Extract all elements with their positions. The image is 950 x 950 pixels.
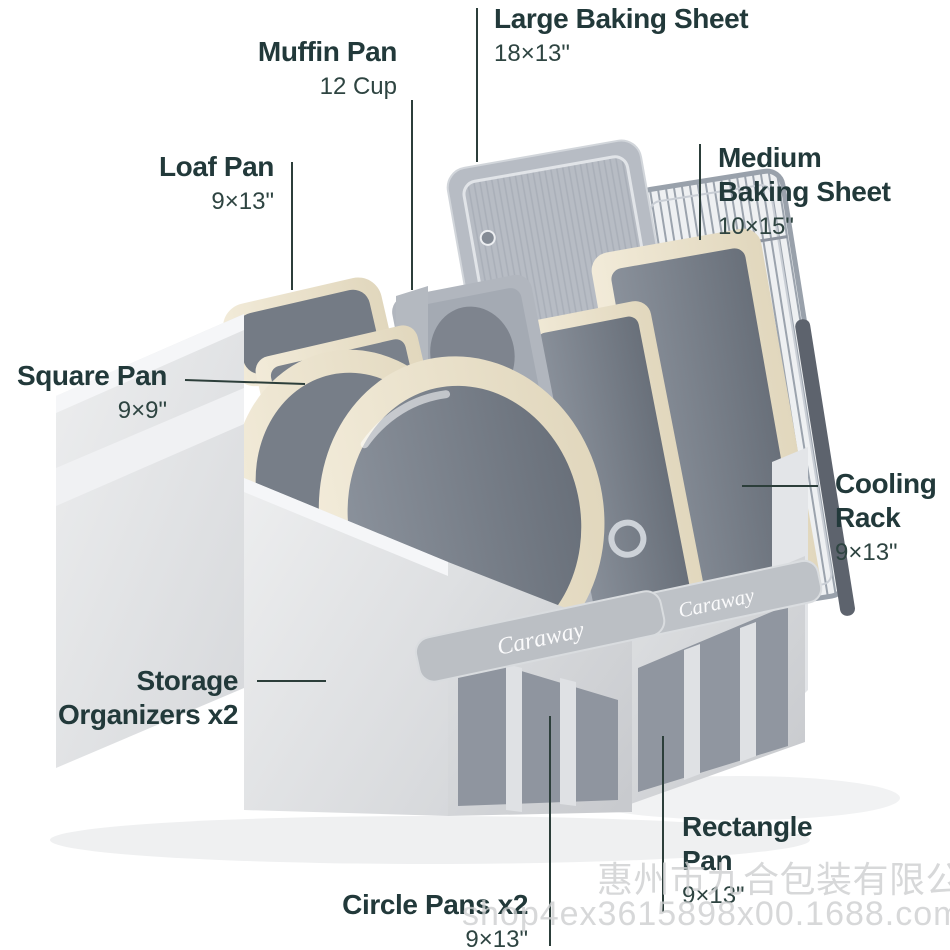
label-loaf-pan-dims: 9×13" <box>159 189 274 215</box>
label-cooling-rack-line2: Rack <box>835 501 936 535</box>
label-loaf-pan: Loaf Pan 9×13" <box>159 150 274 216</box>
label-muffin-pan: Muffin Pan 12 Cup <box>258 35 397 101</box>
label-square-pan: Square Pan 9×9" <box>17 359 167 425</box>
label-cooling-rack-line1: Cooling <box>835 467 936 501</box>
label-cooling-rack-dims: 9×13" <box>835 540 936 566</box>
watermark-shop-url: shop4ex3615898x00.1688.com <box>462 895 950 934</box>
label-storage-organizers-line2: Organizers x2 <box>58 698 238 732</box>
label-medium-baking-sheet-line2: Baking Sheet <box>718 175 891 209</box>
label-cooling-rack: Cooling Rack 9×13" <box>835 467 936 567</box>
label-muffin-pan-title: Muffin Pan <box>258 35 397 69</box>
label-large-baking-sheet: Large Baking Sheet 18×13" <box>494 2 748 68</box>
right-organizer-slat <box>740 622 756 762</box>
label-square-pan-title: Square Pan <box>17 359 167 393</box>
left-organizer-slat <box>506 664 522 812</box>
label-large-baking-sheet-dims: 18×13" <box>494 41 748 67</box>
label-rectangle-pan-line1: Rectangle <box>682 810 812 844</box>
label-muffin-pan-dims: 12 Cup <box>258 74 397 100</box>
label-medium-baking-sheet-line1: Medium <box>718 141 891 175</box>
label-storage-organizers: Storage Organizers x2 <box>58 664 238 732</box>
right-organizer-slat <box>684 644 700 780</box>
label-storage-organizers-line1: Storage <box>58 664 238 698</box>
label-loaf-pan-title: Loaf Pan <box>159 150 274 184</box>
left-organizer-slat <box>560 678 576 806</box>
label-large-baking-sheet-title: Large Baking Sheet <box>494 2 748 36</box>
label-square-pan-dims: 9×9" <box>17 398 167 424</box>
label-medium-baking-sheet: Medium Baking Sheet 10×15" <box>718 141 891 241</box>
label-medium-baking-sheet-dims: 10×15" <box>718 214 891 240</box>
product-annotation-image: Caraway Caraway <box>0 0 950 950</box>
